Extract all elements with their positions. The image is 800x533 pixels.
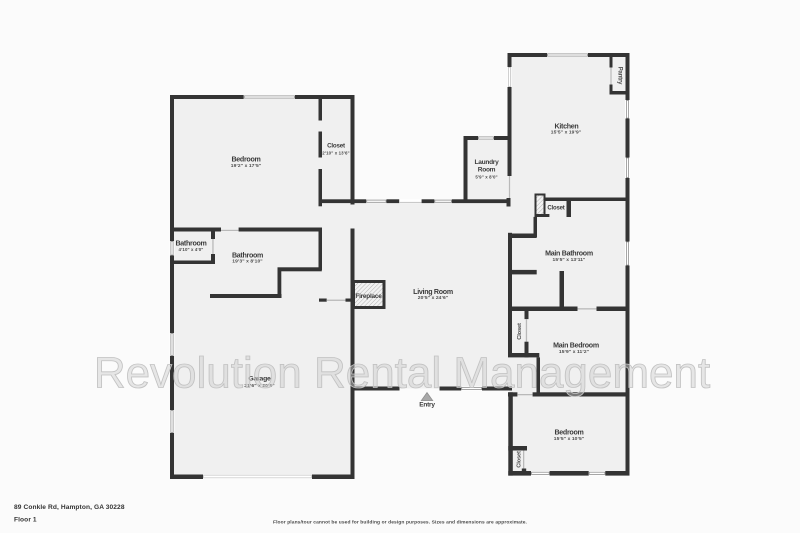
- svg-text:4’10" x 4’0": 4’10" x 4’0": [179, 247, 204, 252]
- svg-text:19’2" x 17’5": 19’2" x 17’5": [231, 163, 261, 169]
- svg-text:Closet: Closet: [517, 323, 523, 340]
- svg-text:20’5" x 24’6": 20’5" x 24’6": [418, 295, 448, 301]
- svg-text:Bedroom: Bedroom: [231, 156, 260, 164]
- svg-text:Pantry: Pantry: [617, 67, 623, 85]
- svg-text:Kitchen: Kitchen: [555, 122, 579, 130]
- svg-text:Closet: Closet: [547, 206, 564, 212]
- svg-text:Entry: Entry: [419, 402, 435, 409]
- svg-text:Laundry: Laundry: [475, 159, 500, 166]
- svg-text:89 Conkle Rd, Hampton, GA 3022: 89 Conkle Rd, Hampton, GA 30228: [14, 504, 125, 511]
- svg-text:15’5" x 10’5": 15’5" x 10’5": [554, 436, 584, 442]
- svg-text:Closet: Closet: [327, 143, 345, 150]
- svg-text:Bathroom: Bathroom: [232, 251, 263, 259]
- svg-text:15’5" x 19’9": 15’5" x 19’9": [551, 130, 581, 136]
- svg-text:Closet: Closet: [516, 451, 522, 468]
- svg-text:Main Bathroom: Main Bathroom: [545, 249, 593, 257]
- svg-text:19’3" x 8’10": 19’3" x 8’10": [232, 259, 262, 265]
- svg-text:Fireplace: Fireplace: [355, 293, 382, 300]
- svg-text:Bedroom: Bedroom: [554, 429, 583, 437]
- svg-text:15’5" x 13’11": 15’5" x 13’11": [553, 257, 586, 263]
- svg-text:5’9" x 8’0": 5’9" x 8’0": [475, 175, 497, 180]
- svg-text:Living Room: Living Room: [413, 288, 453, 296]
- svg-text:Floor 1: Floor 1: [14, 517, 37, 524]
- svg-text:Revolution Rental Management: Revolution Rental Management: [94, 349, 710, 398]
- svg-text:Room: Room: [478, 166, 496, 173]
- svg-text:Floor plans/tour cannot be use: Floor plans/tour cannot be used for buil…: [273, 520, 527, 526]
- svg-text:2’10" x 13’6": 2’10" x 13’6": [322, 151, 349, 156]
